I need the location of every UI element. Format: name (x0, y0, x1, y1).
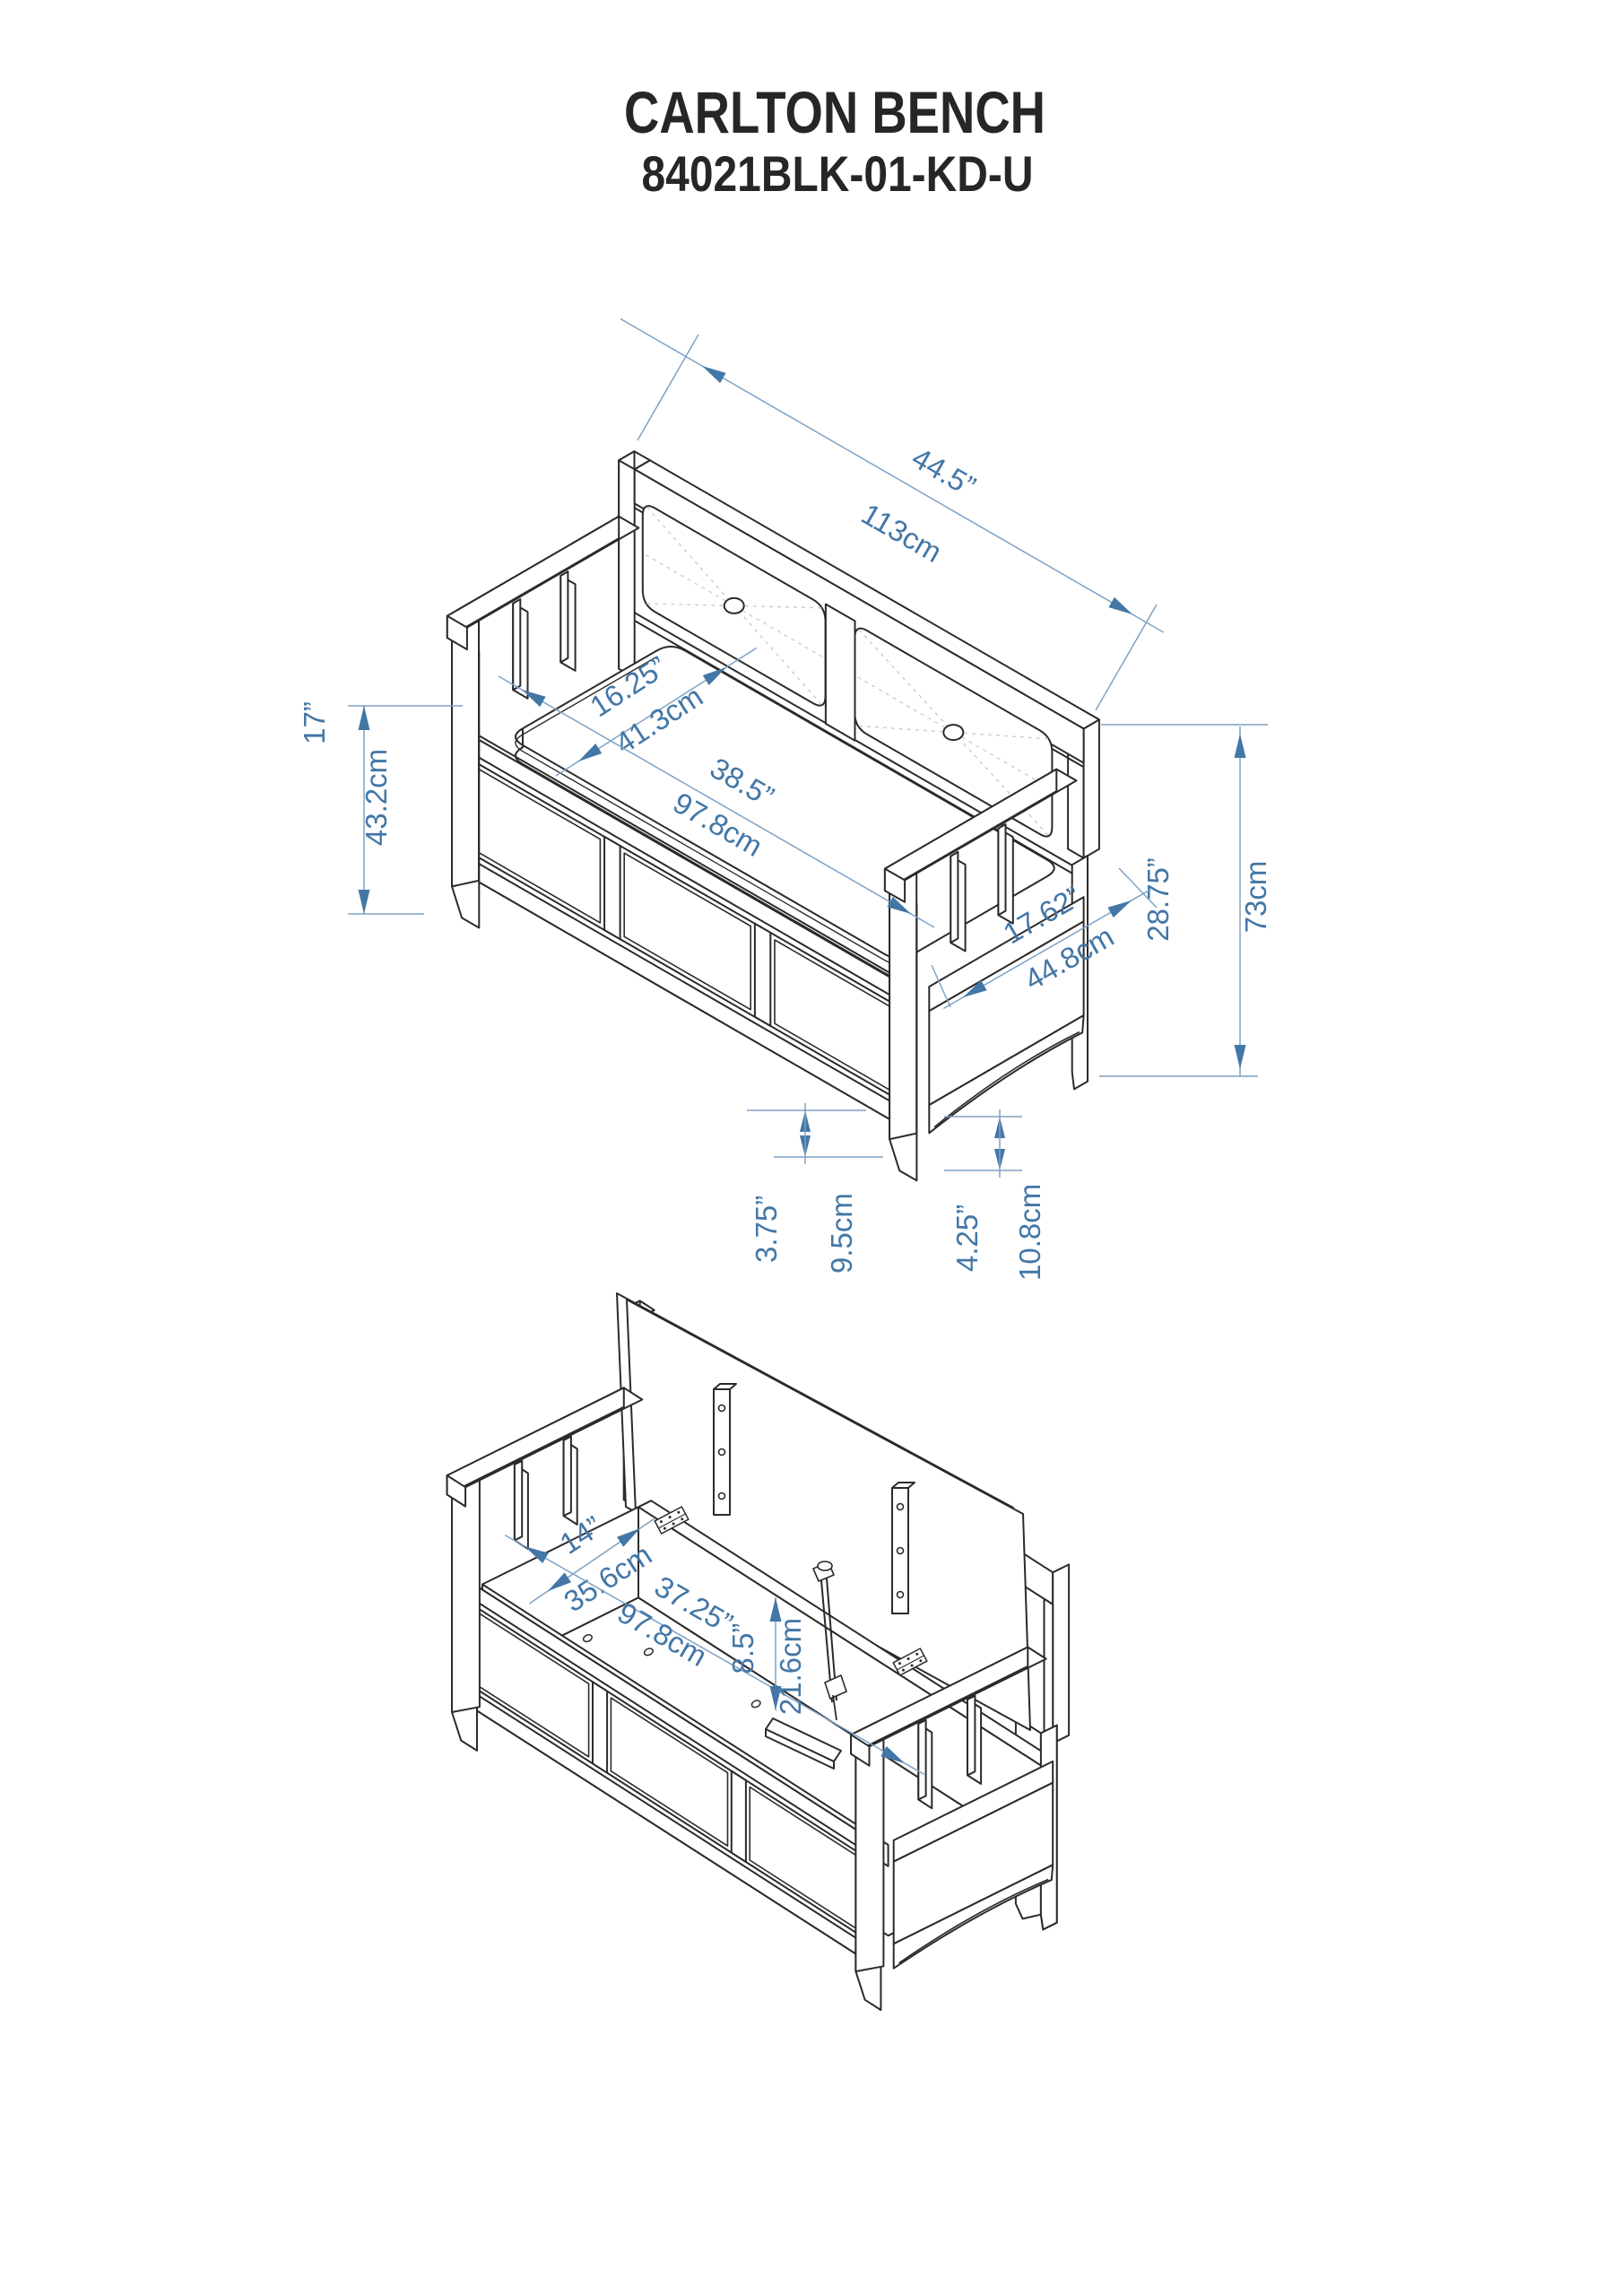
svg-text:3.75”: 3.75” (750, 1196, 783, 1263)
svg-text:28.75”: 28.75” (1141, 857, 1175, 942)
svg-text:84021BLK-01-KD-U: 84021BLK-01-KD-U (642, 145, 1034, 202)
svg-text:8.5”: 8.5” (726, 1623, 759, 1674)
svg-text:73cm: 73cm (1239, 861, 1272, 934)
svg-text:4.25”: 4.25” (950, 1205, 984, 1272)
svg-text:9.5cm: 9.5cm (825, 1193, 858, 1274)
svg-text:43.2cm: 43.2cm (360, 749, 393, 846)
svg-text:10.8cm: 10.8cm (1013, 1184, 1046, 1281)
svg-text:CARLTON BENCH: CARLTON BENCH (624, 79, 1045, 145)
svg-text:21.6cm: 21.6cm (774, 1618, 807, 1715)
svg-text:17”: 17” (298, 701, 331, 744)
